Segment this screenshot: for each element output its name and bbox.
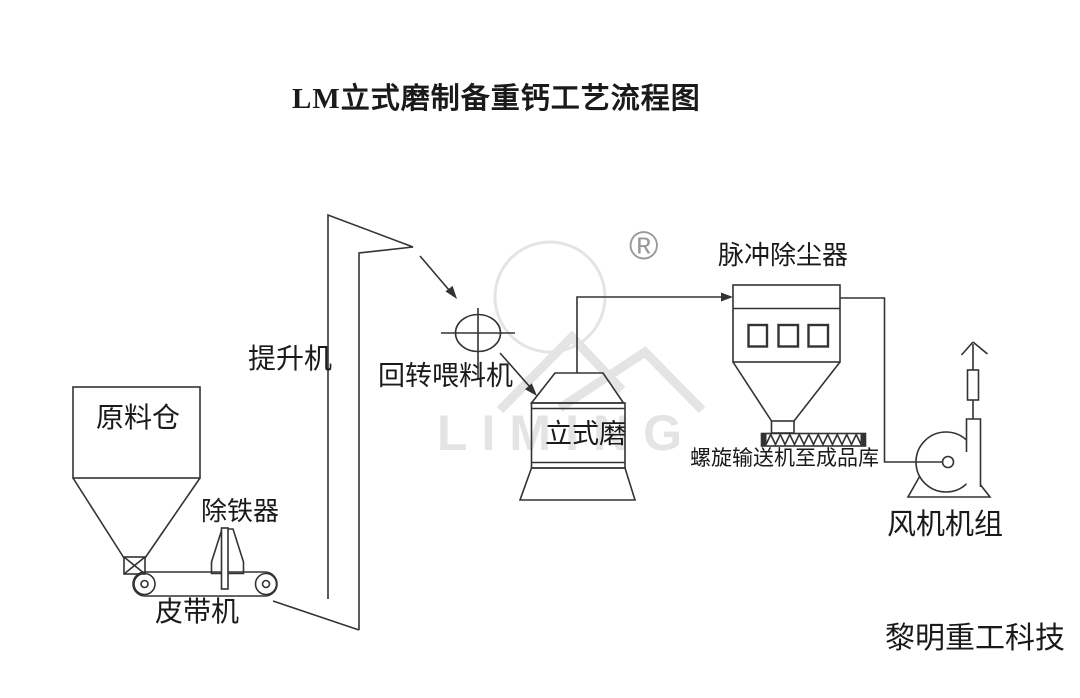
page-title: LM立式磨制备重钙工艺流程图 xyxy=(292,84,701,116)
label-belt-conveyor: 皮带机 xyxy=(155,598,239,629)
label-iron-remover: 除铁器 xyxy=(201,498,279,527)
label-vertical-mill: 立式磨 xyxy=(545,420,626,450)
process-flow-diagram: LIMING ® xyxy=(0,0,1080,698)
iron-remover-shape xyxy=(212,528,244,589)
screw-conveyor-shape xyxy=(762,434,866,447)
company-name: 黎明重工科技 xyxy=(885,622,1065,655)
label-bucket-elevator: 提升机 xyxy=(248,345,332,376)
flow-arrow-to-feeder xyxy=(420,256,457,299)
label-rotary-feeder: 回转喂料机 xyxy=(378,362,513,392)
label-pulse-dust-collector: 脉冲除尘器 xyxy=(718,242,848,271)
belt-conveyor-shape xyxy=(133,572,277,596)
pulse-dust-collector-shape xyxy=(733,285,840,433)
duct-mill-to-collector xyxy=(577,293,733,374)
bucket-elevator-shape xyxy=(273,215,413,630)
label-raw-material-silo: 原料仓 xyxy=(96,404,180,435)
label-fan-unit: 风机机组 xyxy=(887,510,1003,542)
label-screw-conveyor: 螺旋输送机至成品库 xyxy=(690,447,879,470)
